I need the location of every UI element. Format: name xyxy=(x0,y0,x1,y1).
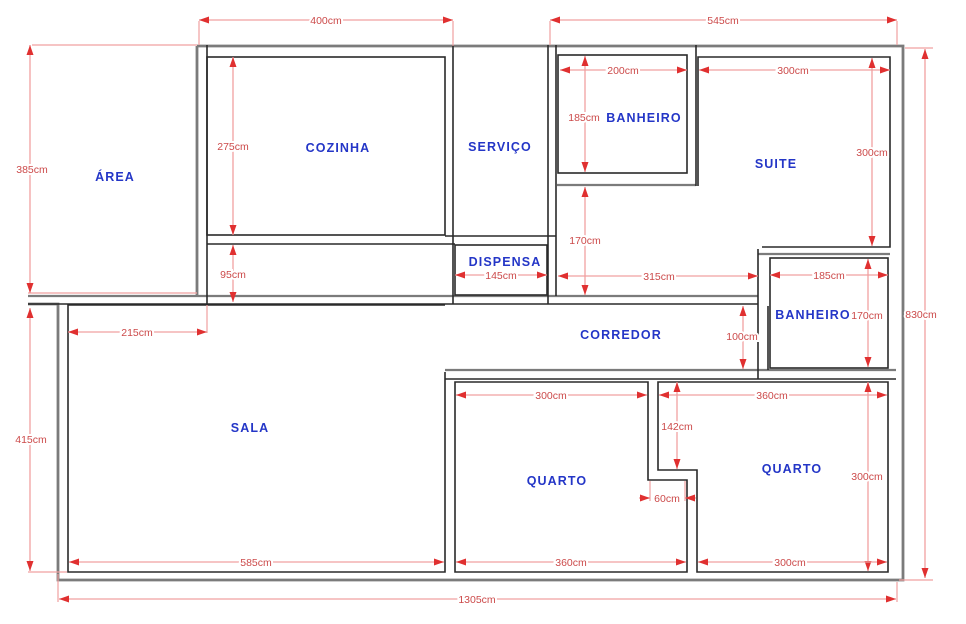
dim-label-closet-depth: 142cm xyxy=(661,421,693,433)
dim-label-total-height: 830cm xyxy=(905,309,937,321)
room-label-dispensa: DISPENSA xyxy=(469,255,542,269)
room-label-sala: SALA xyxy=(231,421,269,435)
floor-plan: 400cm 545cm 385cm 275cm 200cm 300cm 185c… xyxy=(0,0,966,624)
room-label-quarto2: QUARTO xyxy=(762,462,823,476)
room-label-area: ÁREA xyxy=(95,169,135,184)
room-label-corredor: CORREDOR xyxy=(580,328,662,342)
dim-label-suite-height: 300cm xyxy=(856,147,888,159)
wall-outer-shell xyxy=(28,46,903,580)
dim-label-corredor-height: 100cm xyxy=(726,331,758,343)
room-outline-sala xyxy=(68,305,445,572)
dim-label-hall-height: 170cm xyxy=(569,235,601,247)
dim-label-area-height: 385cm xyxy=(16,164,48,176)
room-label-suite: SUITE xyxy=(755,157,797,171)
room-label-banheiro-social: BANHEIRO xyxy=(775,308,850,322)
dim-label-cozinha-height: 275cm xyxy=(217,141,249,153)
dim-label-hall-width: 315cm xyxy=(643,271,675,283)
dim-label-sala-left-offset: 215cm xyxy=(121,327,153,339)
dim-label-right-wing-width: 545cm xyxy=(707,15,739,27)
room-labels: ÁREA COZINHA SERVIÇO BANHEIRO SUITE DISP… xyxy=(95,111,851,488)
dim-label-quarto1-top-width: 300cm xyxy=(535,390,567,402)
dim-label-quarto1-bottom-width: 360cm xyxy=(555,557,587,569)
room-label-banheiro-suite: BANHEIRO xyxy=(606,111,681,125)
dim-label-total-width: 1305cm xyxy=(458,594,496,606)
room-label-quarto1: QUARTO xyxy=(527,474,588,488)
dim-label-cozinha-block-width: 400cm xyxy=(310,15,342,27)
dim-label-dispensa-width: 145cm xyxy=(485,270,517,282)
room-label-cozinha: COZINHA xyxy=(306,141,371,155)
dim-label-banheiro-social-height: 170cm xyxy=(851,310,883,322)
walls xyxy=(28,45,903,580)
dim-label-banheiro-social-width: 185cm xyxy=(813,270,845,282)
dim-label-sala-height: 415cm xyxy=(15,434,47,446)
dim-label-quarto2-height: 300cm xyxy=(851,471,883,483)
dim-label-banheiro-suite-width: 200cm xyxy=(607,65,639,77)
dim-label-sala-width: 585cm xyxy=(240,557,272,569)
dim-label-quarto2-top-width: 360cm xyxy=(756,390,788,402)
dim-label-quarto2-bottom-width: 300cm xyxy=(774,557,806,569)
floor-plan-drawing: 400cm 545cm 385cm 275cm 200cm 300cm 185c… xyxy=(0,0,966,624)
dim-label-banheiro-suite-height: 185cm xyxy=(568,112,600,124)
dim-label-suite-width: 300cm xyxy=(777,65,809,77)
dim-label-passage-height: 95cm xyxy=(220,269,246,281)
dim-label-closet-width: 60cm xyxy=(654,493,680,505)
room-label-servico: SERVIÇO xyxy=(468,140,532,154)
